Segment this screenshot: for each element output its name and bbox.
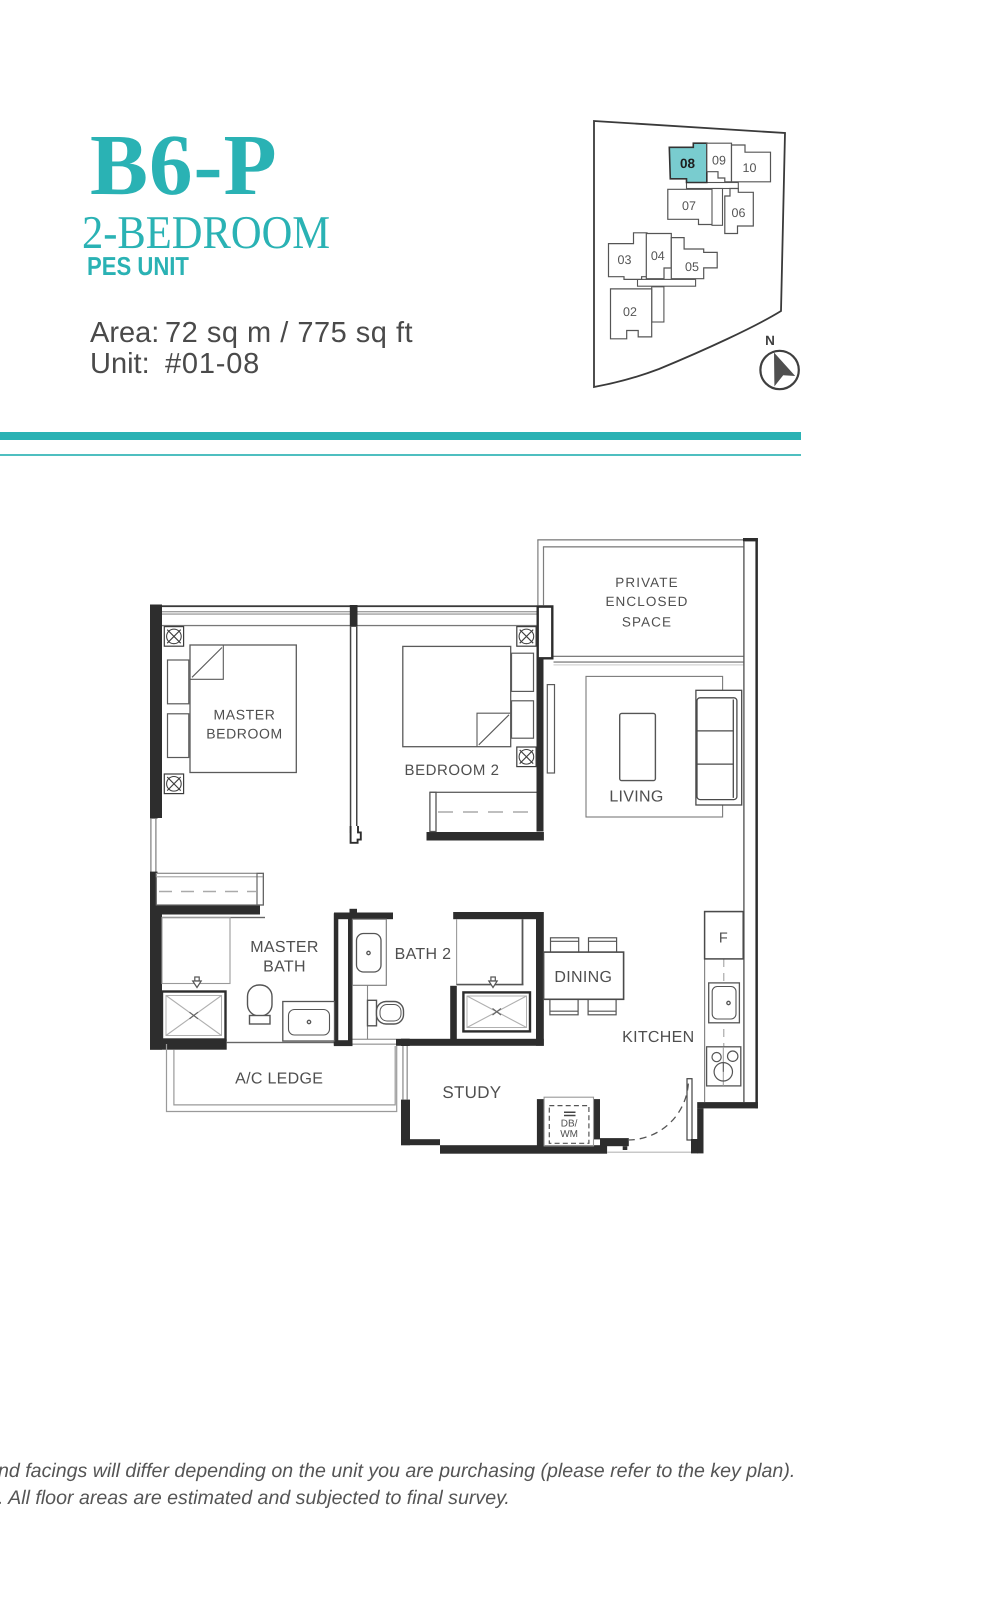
svg-text:SPACE: SPACE [622,615,672,630]
svg-text:06: 06 [732,206,746,220]
svg-text:STUDY: STUDY [442,1083,501,1102]
svg-text:F: F [719,931,728,947]
svg-text:03: 03 [618,253,632,267]
svg-text:BEDROOM: BEDROOM [206,726,283,742]
svg-text:09: 09 [712,154,726,168]
svg-text:ENCLOSED: ENCLOSED [605,594,688,609]
svg-text:MASTER: MASTER [214,707,276,723]
svg-text:08: 08 [680,156,696,171]
svg-text:BATH: BATH [263,959,306,976]
svg-text:A/C LEDGE: A/C LEDGE [235,1071,323,1088]
svg-text:LIVING: LIVING [609,789,663,806]
svg-text:BATH 2: BATH 2 [395,946,452,963]
svg-text:04: 04 [651,249,665,263]
svg-text:BEDROOM 2: BEDROOM 2 [405,762,500,779]
svg-text:05: 05 [685,260,699,274]
svg-text:07: 07 [682,199,696,213]
svg-text:PRIVATE: PRIVATE [615,575,678,590]
svg-text:10: 10 [743,161,757,175]
svg-text:WM: WM [560,1129,578,1140]
svg-text:N: N [765,333,775,348]
svg-text:MASTER: MASTER [250,939,318,956]
svg-text:KITCHEN: KITCHEN [622,1029,694,1046]
svg-text:DINING: DINING [554,969,612,986]
svg-text:02: 02 [623,305,637,319]
